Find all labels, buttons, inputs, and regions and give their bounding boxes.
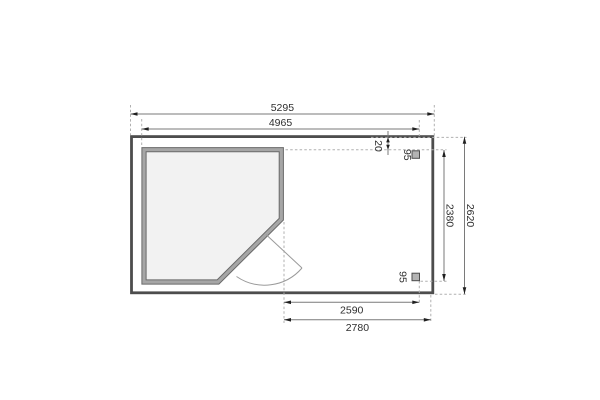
dim-label-post-span: 2380 (444, 204, 456, 228)
dim-label-edge-gap: 20 (372, 140, 384, 152)
dim-label-post-top-size: 95 (401, 149, 413, 161)
dim-label-overall-width: 5295 (271, 102, 295, 114)
arrow-right (427, 112, 434, 116)
post-bottom-right (412, 273, 420, 281)
arrow-bottom (463, 287, 467, 294)
arrow-left (142, 127, 149, 131)
dim-label-canopy-inner: 2590 (340, 305, 364, 317)
floor-plan-drawing: 5295 4965 2590 2780 2380 2620 (0, 0, 600, 400)
arrow-right (412, 127, 419, 131)
dim-overall-width: 5295 (131, 102, 435, 116)
dim-canopy-inner: 2590 (284, 301, 419, 317)
dim-label-overall-depth: 2620 (464, 204, 476, 228)
arrow-right (424, 318, 431, 322)
arrow-left (284, 318, 291, 322)
arrow-top (442, 150, 446, 157)
dim-label-inner-width: 4965 (269, 117, 293, 129)
arrow-bottom (442, 274, 446, 281)
dim-label-canopy-outer: 2780 (346, 322, 370, 334)
arrow-left (131, 112, 138, 116)
floor-plan-page: 5295 4965 2590 2780 2380 2620 (0, 0, 600, 400)
dim-post-span: 2380 (442, 150, 455, 281)
dim-inner-width: 4965 (142, 117, 420, 131)
dim-label-post-bottom-size: 95 (397, 271, 409, 283)
arrow-right (412, 301, 419, 305)
arrow-left (284, 301, 291, 305)
dim-canopy-outer: 2780 (284, 318, 431, 334)
dim-overall-depth: 2620 (463, 137, 476, 294)
